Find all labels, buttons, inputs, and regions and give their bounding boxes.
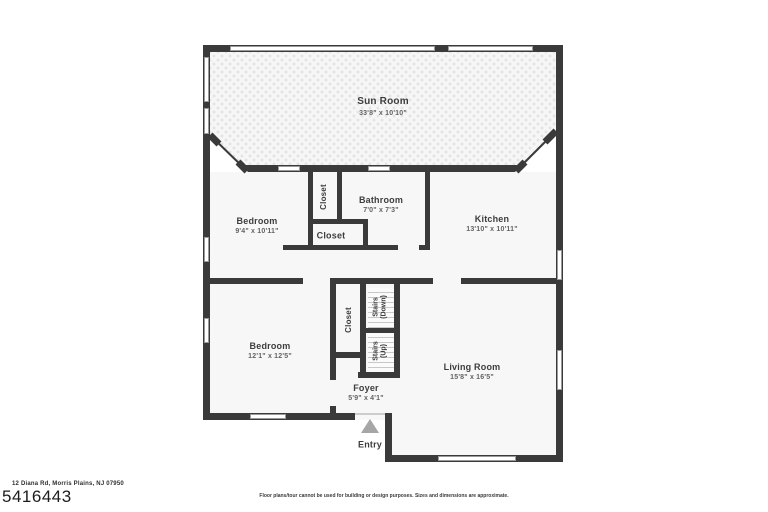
living-room-label: Living Room 15'8" x 16'5" (444, 362, 501, 382)
room-name: Closet (319, 184, 329, 210)
wall (283, 245, 368, 250)
wall (330, 352, 360, 358)
wall (556, 165, 563, 462)
foyer-label: Foyer 5'9" x 4'1" (348, 383, 384, 403)
stairs-direction: (Up) (381, 341, 389, 360)
window (557, 250, 562, 280)
wall (425, 172, 430, 248)
room-dims: 7'0" x 7'3" (359, 206, 403, 215)
window (204, 237, 209, 262)
stairs-down-label: Stairs (Down) (373, 295, 390, 319)
entry-arrow-icon (361, 419, 379, 433)
bedroom1-label: Bedroom 9'4" x 10'11" (235, 216, 278, 236)
wall (419, 245, 430, 250)
kitchen-label: Kitchen 13'10" x 10'11" (466, 214, 518, 234)
wall (210, 278, 303, 284)
sunroom-label: Sun Room 33'8" x 10'10" (357, 96, 409, 118)
living-room-floor-extension (389, 413, 559, 460)
floor-plan: Sun Room 33'8" x 10'10" Bedroom 9'4" x 1… (0, 0, 768, 512)
room-name: Sun Room (357, 96, 409, 109)
window (368, 166, 390, 171)
room-name: Bathroom (359, 195, 403, 206)
wall (358, 372, 400, 378)
room-name: Kitchen (466, 214, 518, 225)
window (230, 46, 435, 51)
entry-label: Entry (358, 439, 382, 450)
wall (308, 219, 368, 224)
window (204, 318, 209, 343)
closet3-label: Closet (344, 307, 354, 333)
wall (368, 245, 398, 250)
window (250, 414, 286, 419)
closet1-label: Closet (319, 184, 329, 210)
wall (394, 284, 400, 378)
room-name: Foyer (348, 383, 384, 394)
entry-text: Entry (358, 439, 382, 450)
window (204, 108, 209, 134)
wall (308, 172, 313, 248)
room-name: Living Room (444, 362, 501, 373)
window (204, 57, 209, 102)
wall (330, 284, 336, 380)
room-dims: 13'10" x 10'11" (466, 225, 518, 234)
room-dims: 12'1" x 12'5" (248, 352, 292, 361)
room-name: Bedroom (235, 216, 278, 227)
window (448, 46, 533, 51)
disclaimer-text: Floor plans/tour cannot be used for buil… (259, 493, 508, 499)
room-name: Bedroom (248, 341, 292, 352)
room-name: Closet (317, 230, 346, 241)
room-dims: 33'8" x 10'10" (357, 109, 409, 118)
room-dims: 15'8" x 16'5" (444, 373, 501, 382)
window (438, 456, 516, 461)
wall (461, 278, 556, 284)
wall (330, 406, 336, 413)
room-dims: 5'9" x 4'1" (348, 394, 384, 403)
closet2-label: Closet (317, 230, 346, 241)
wall (556, 45, 563, 172)
bedroom2-label: Bedroom 12'1" x 12'5" (248, 341, 292, 361)
stairs-direction: (Down) (381, 295, 389, 319)
listing-number: 5416443 (2, 487, 72, 507)
wall (203, 165, 210, 420)
bathroom-label: Bathroom 7'0" x 7'3" (359, 195, 403, 215)
room-dims: 9'4" x 10'11" (235, 227, 278, 236)
room-name: Closet (344, 307, 354, 333)
stairs-name: Stairs (373, 341, 381, 360)
wall (337, 172, 342, 222)
stairs-up-label: Stairs (Up) (373, 341, 390, 360)
window (278, 166, 300, 171)
entry-threshold (355, 413, 385, 415)
window (557, 350, 562, 390)
stairs-name: Stairs (373, 295, 381, 319)
wall (330, 278, 433, 284)
